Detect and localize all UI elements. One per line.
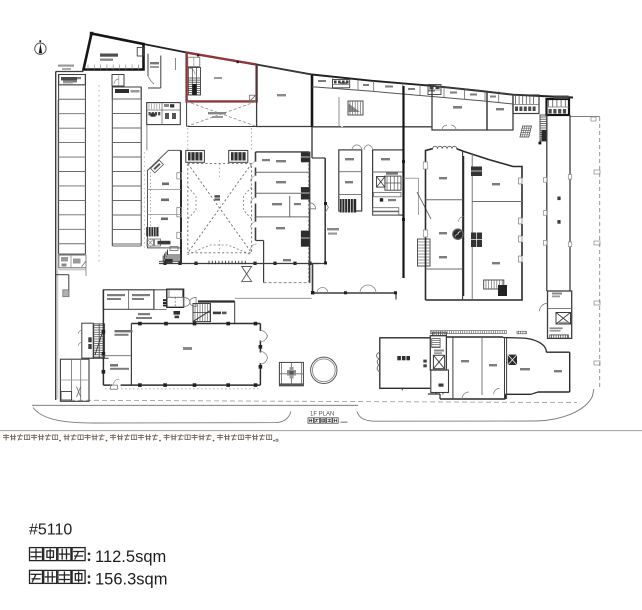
- svg-text:112.5sqm: 112.5sqm: [95, 548, 166, 566]
- svg-text:156.3sqm: 156.3sqm: [95, 570, 167, 588]
- svg-text:1F PLAN: 1F PLAN: [310, 412, 334, 418]
- svg-text:#5110: #5110: [29, 522, 72, 539]
